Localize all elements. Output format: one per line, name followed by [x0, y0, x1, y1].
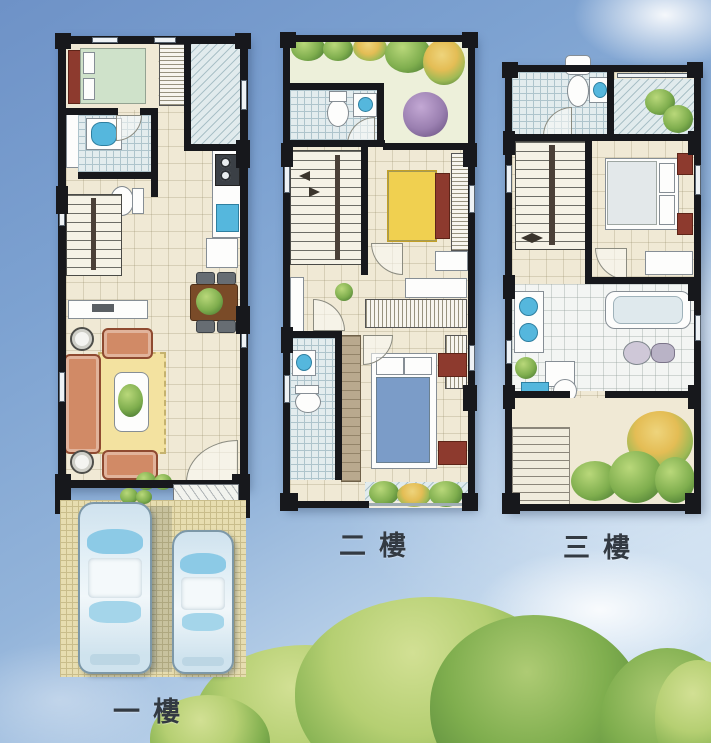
p1-kitchen-sink — [216, 204, 239, 232]
p1-wall — [184, 44, 191, 148]
p3-wall — [512, 391, 570, 398]
p1-wall — [66, 108, 118, 115]
p1-pillow — [83, 52, 95, 74]
p1-balcony — [191, 44, 240, 146]
p3-window — [506, 165, 512, 193]
p2-nightstand — [438, 353, 467, 377]
p3-bathtub-basin — [613, 296, 683, 324]
p3-column — [503, 131, 515, 155]
p2-toilet-tank — [329, 91, 347, 102]
p3-window — [506, 340, 512, 364]
p2-bed-blue — [376, 377, 430, 463]
p2-outer-wall — [283, 35, 290, 508]
p2-column — [463, 385, 477, 411]
p2-outer-wall — [283, 35, 475, 42]
p2-window — [284, 165, 290, 193]
p2-balcony-rail — [369, 503, 468, 506]
p2-wall — [335, 331, 342, 480]
p3-nightstand — [677, 213, 693, 235]
p2-window — [469, 185, 475, 213]
p1-window — [241, 80, 247, 110]
p2-desk — [435, 251, 468, 271]
p1-washer-tub — [91, 122, 117, 146]
p3-wall — [605, 391, 694, 398]
p3-vanity-basin — [519, 297, 538, 316]
p3-column — [688, 131, 701, 155]
p1-sofa — [64, 354, 101, 454]
p3-balcony-plant — [663, 105, 693, 133]
p2-column — [462, 32, 478, 48]
p1-wall — [140, 108, 158, 115]
p1-armchair — [102, 328, 153, 359]
p2-bed-headboard — [435, 173, 450, 239]
p3-window — [695, 315, 701, 341]
p3-wall — [585, 141, 592, 284]
p1-kitchen-cabinet — [206, 238, 238, 268]
p1-speaker — [70, 450, 94, 474]
p3-bath-plant — [515, 357, 537, 379]
p1-car-windshield — [87, 529, 143, 554]
p1-burner — [220, 157, 231, 168]
p1-car-windshield — [180, 553, 226, 574]
p2-purple-shrub — [403, 92, 448, 137]
p2-closet — [365, 299, 467, 328]
third-floor-label: 三樓 — [505, 526, 701, 565]
p1-column — [236, 140, 250, 168]
p2-window — [469, 345, 475, 371]
p3-stairs-rail — [549, 145, 555, 245]
p3-column — [502, 493, 520, 514]
p2-wall — [377, 83, 384, 147]
p2-stairs — [290, 150, 363, 265]
p1-burner — [220, 170, 231, 181]
p1-pillow — [83, 78, 95, 100]
p1-car-tail — [90, 654, 140, 666]
p3-window — [695, 165, 701, 195]
p2-balcony-plant — [369, 481, 399, 505]
p2-column — [281, 143, 293, 167]
p1-wall — [184, 144, 240, 151]
p1-garage-shadow — [150, 506, 172, 672]
p3-column — [502, 62, 518, 78]
p2-wall — [361, 147, 368, 275]
p3-nightstand — [677, 153, 693, 175]
p1-column — [56, 186, 68, 214]
p1-car-rear-glass — [182, 613, 225, 631]
p3-bidet — [651, 343, 675, 363]
p3-sink-basin — [593, 82, 607, 98]
p1-car-roof — [181, 577, 225, 611]
p1-window — [59, 372, 65, 402]
p2-sink2-basin — [296, 354, 312, 371]
cloud-top-right — [570, 0, 711, 70]
p1-dining-chair — [196, 320, 215, 333]
p1-wardrobe — [159, 44, 186, 106]
p3-wall — [607, 72, 614, 141]
p3-terrace-steps — [512, 427, 570, 506]
p2-toilet2-tank — [295, 385, 319, 394]
p1-column — [55, 33, 71, 49]
p1-outer-wall — [58, 36, 248, 44]
p1-column — [236, 306, 250, 334]
p3-pillow — [659, 163, 675, 193]
p2-hall-plant — [335, 283, 353, 301]
p1-stairs-rail — [91, 198, 96, 270]
p3-outer-wall — [505, 504, 701, 511]
first-floor-label: 一樓 — [58, 690, 248, 729]
first-floor-plan — [58, 36, 248, 488]
p2-wall — [383, 143, 468, 150]
p2-tall-cabinet — [341, 335, 361, 482]
p2-toilet2 — [295, 391, 321, 413]
p1-car-large — [78, 502, 152, 674]
p2-pillow — [404, 357, 432, 375]
p2-window — [284, 375, 290, 403]
third-floor-plan — [505, 65, 701, 511]
p1-window — [154, 37, 176, 43]
p3-column — [503, 385, 515, 409]
p2-column — [280, 493, 298, 511]
p2-toilet — [327, 99, 349, 127]
p1-car-tail — [182, 657, 224, 667]
p1-tv — [92, 304, 114, 312]
p2-nightstand — [438, 441, 467, 465]
p1-column — [235, 33, 251, 49]
p3-toilet2 — [623, 341, 651, 365]
p3-column — [687, 62, 703, 78]
p3-toilet — [567, 75, 589, 107]
p2-pillow — [376, 357, 404, 375]
p1-dining-chair — [217, 320, 236, 333]
p1-window — [92, 37, 118, 43]
p1-wall — [78, 172, 152, 179]
p2-stairs-arrow — [299, 171, 310, 181]
p2-column — [281, 327, 293, 353]
p1-wall — [151, 115, 158, 197]
p1-car-small — [172, 530, 234, 674]
p1-speaker — [70, 327, 94, 351]
p2-column — [280, 32, 296, 48]
p3-window-band — [617, 73, 691, 78]
p2-outer-wall — [468, 35, 475, 508]
p1-car-rear-glass — [89, 601, 141, 623]
p2-column — [463, 143, 477, 167]
p3-pillow — [659, 195, 675, 225]
p2-wardrobe — [451, 153, 469, 251]
p3-stairs-arrow — [521, 233, 532, 243]
floor-plan-poster: 一樓 二樓 三樓 — [0, 0, 711, 743]
p3-column — [688, 277, 701, 301]
p1-car-roof — [88, 558, 141, 598]
p2-bed-yellow — [387, 170, 437, 242]
p3-outer-wall — [505, 65, 701, 72]
p3-column — [685, 493, 701, 514]
p2-dresser — [405, 278, 467, 298]
p3-bed-blanket — [607, 161, 657, 225]
p1-toilet-tank — [132, 188, 144, 214]
p3-vanity-basin — [519, 323, 538, 342]
p3-wall — [592, 277, 694, 284]
p2-wall — [290, 83, 383, 90]
p3-dresser — [645, 251, 693, 275]
p2-stairs-arrow — [309, 187, 320, 197]
p2-column — [462, 493, 478, 511]
p1-coffee-table-plant — [118, 384, 143, 417]
p3-stairs-arrow — [532, 233, 543, 243]
p3-wall — [512, 134, 694, 141]
p2-wall — [290, 140, 385, 147]
p2-sink-basin — [358, 97, 373, 112]
second-floor-plan — [283, 35, 475, 508]
p3-column — [688, 385, 701, 409]
p2-stairs-rail — [335, 155, 340, 260]
p2-terrace-plant — [423, 39, 465, 85]
p1-table-plant — [196, 288, 223, 315]
p3-column — [503, 275, 515, 299]
second-floor-label: 二樓 — [283, 524, 475, 563]
p1-outer-wall — [58, 36, 66, 488]
